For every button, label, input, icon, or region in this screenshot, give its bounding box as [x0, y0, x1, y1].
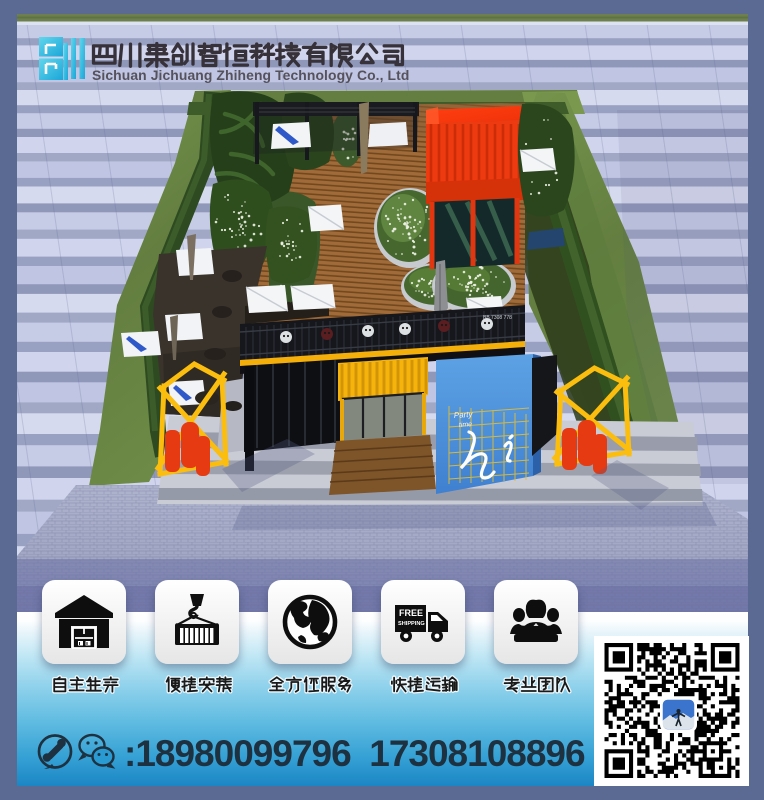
- svg-text:BB 7308 778: BB 7308 778: [483, 315, 512, 321]
- svg-text:SHIPPING: SHIPPING: [398, 621, 425, 627]
- svg-text:time: time: [459, 421, 473, 429]
- svg-text:FREE: FREE: [399, 608, 423, 618]
- svg-text:Party: Party: [454, 410, 474, 420]
